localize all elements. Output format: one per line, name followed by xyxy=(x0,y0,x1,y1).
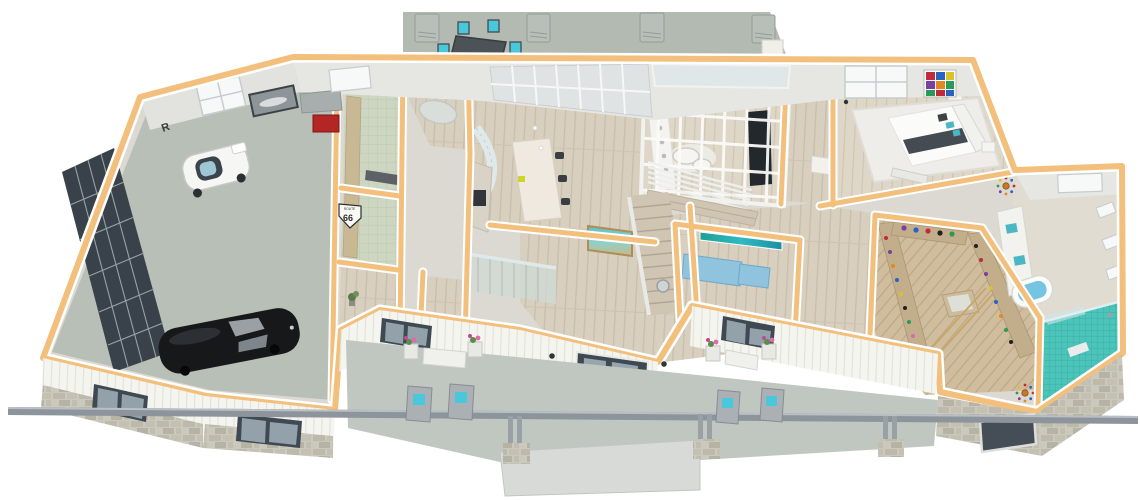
adirondack-chair xyxy=(448,384,474,420)
red-tool-chest xyxy=(313,115,339,132)
adirondack-chair xyxy=(406,386,432,422)
bedroom-rear-window xyxy=(845,66,907,98)
mudroom-cabinets xyxy=(345,96,361,186)
porch-sconce xyxy=(549,353,555,359)
mudroom-rear-window xyxy=(329,66,371,92)
vanity-sink-teal xyxy=(1005,223,1017,234)
route-shield-word: ROUTE xyxy=(344,207,355,211)
floorplan-svg: R ROUTE 66 xyxy=(0,0,1140,500)
nightstand xyxy=(982,142,995,152)
bath-rear-window xyxy=(1058,173,1103,193)
ac-unit xyxy=(640,13,664,42)
route-shield-number: 66 xyxy=(343,213,353,223)
pendant-light xyxy=(539,146,543,150)
bedroom-mosaic-art xyxy=(924,70,956,97)
yellow-board xyxy=(518,176,525,182)
workbench xyxy=(300,90,342,113)
ac-unit xyxy=(415,14,439,42)
round-mirror xyxy=(657,280,669,292)
shower-head xyxy=(1108,313,1113,318)
vanity-sink-teal xyxy=(1013,255,1025,266)
porch-bench xyxy=(423,348,466,368)
porch-sconce xyxy=(661,361,667,367)
closet-island xyxy=(942,290,979,317)
floorplan-render: R ROUTE 66 xyxy=(0,0,1140,500)
ac-unit xyxy=(527,14,550,42)
pendant-light xyxy=(533,126,537,130)
adirondack-chair xyxy=(716,390,740,424)
floor-lamp xyxy=(844,100,848,104)
ac-unit xyxy=(752,15,775,43)
atrium-glass-wall xyxy=(652,64,790,88)
adirondack-chair xyxy=(760,388,784,422)
